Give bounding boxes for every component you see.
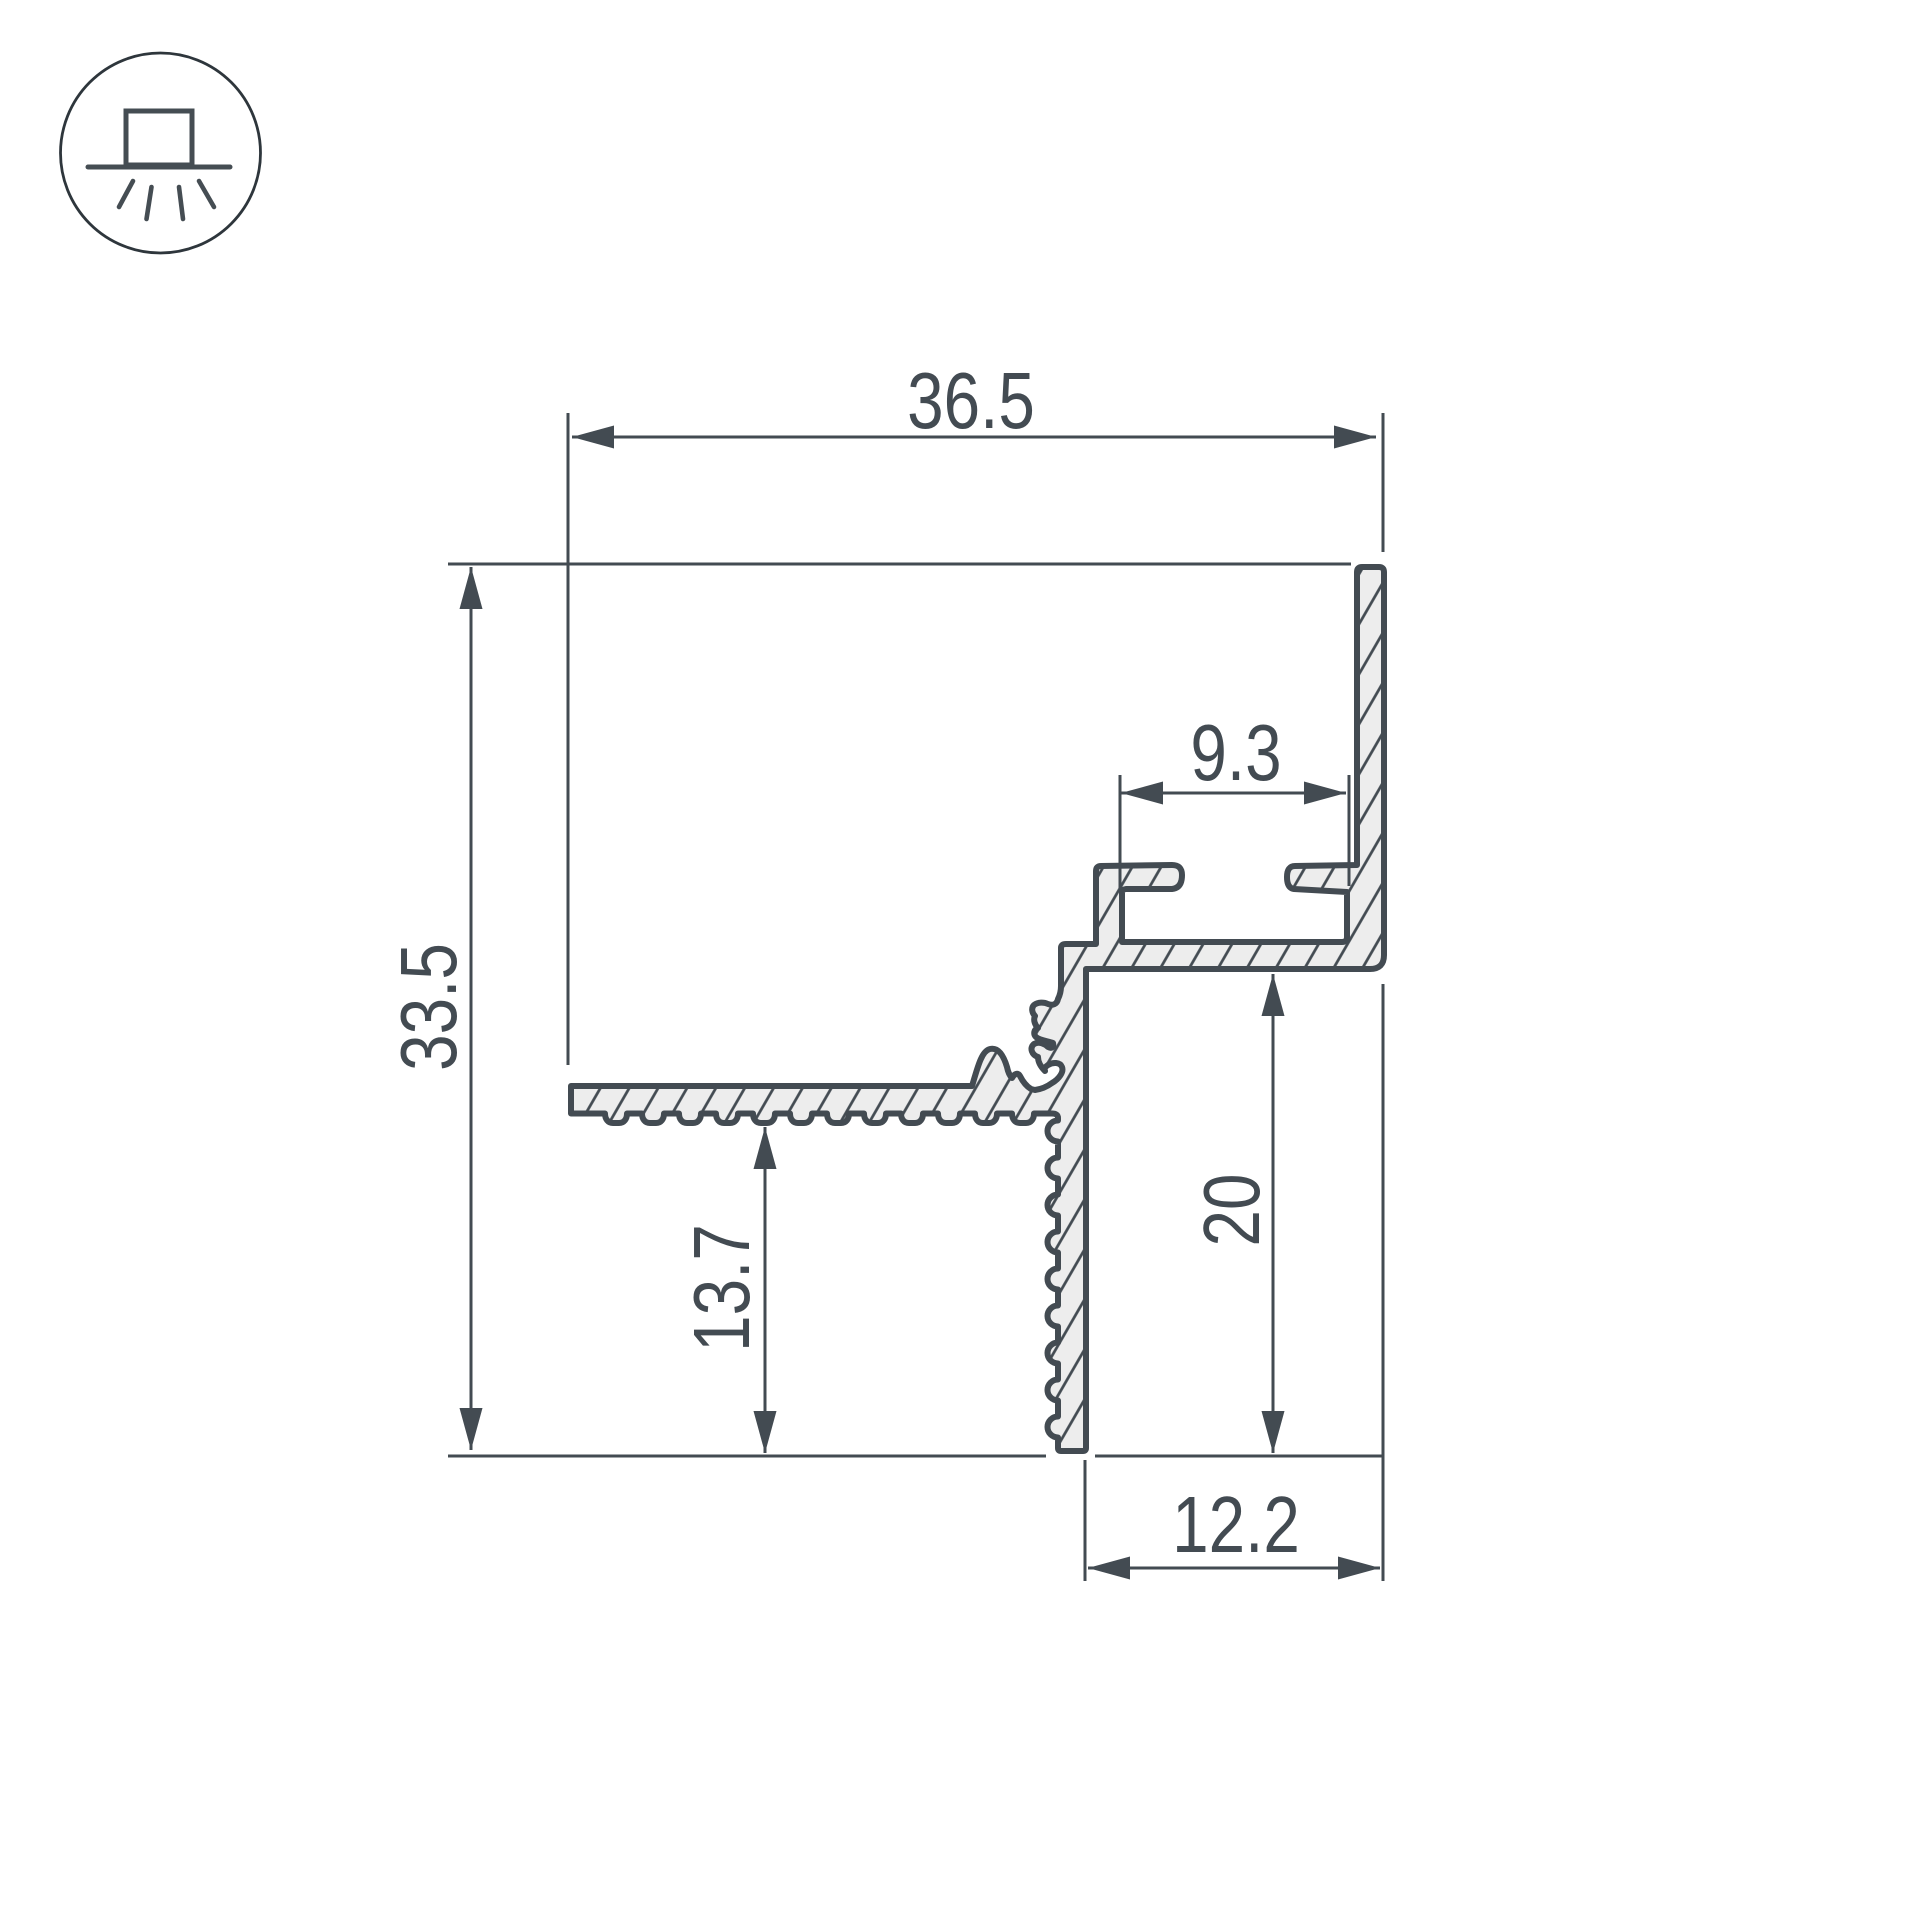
svg-text:9.3: 9.3 xyxy=(1190,708,1281,798)
svg-text:12.2: 12.2 xyxy=(1172,1480,1300,1570)
svg-text:36.5: 36.5 xyxy=(907,356,1035,446)
svg-text:33.5: 33.5 xyxy=(384,943,474,1071)
svg-text:13.7: 13.7 xyxy=(677,1224,767,1352)
svg-text:20: 20 xyxy=(1187,1174,1277,1247)
